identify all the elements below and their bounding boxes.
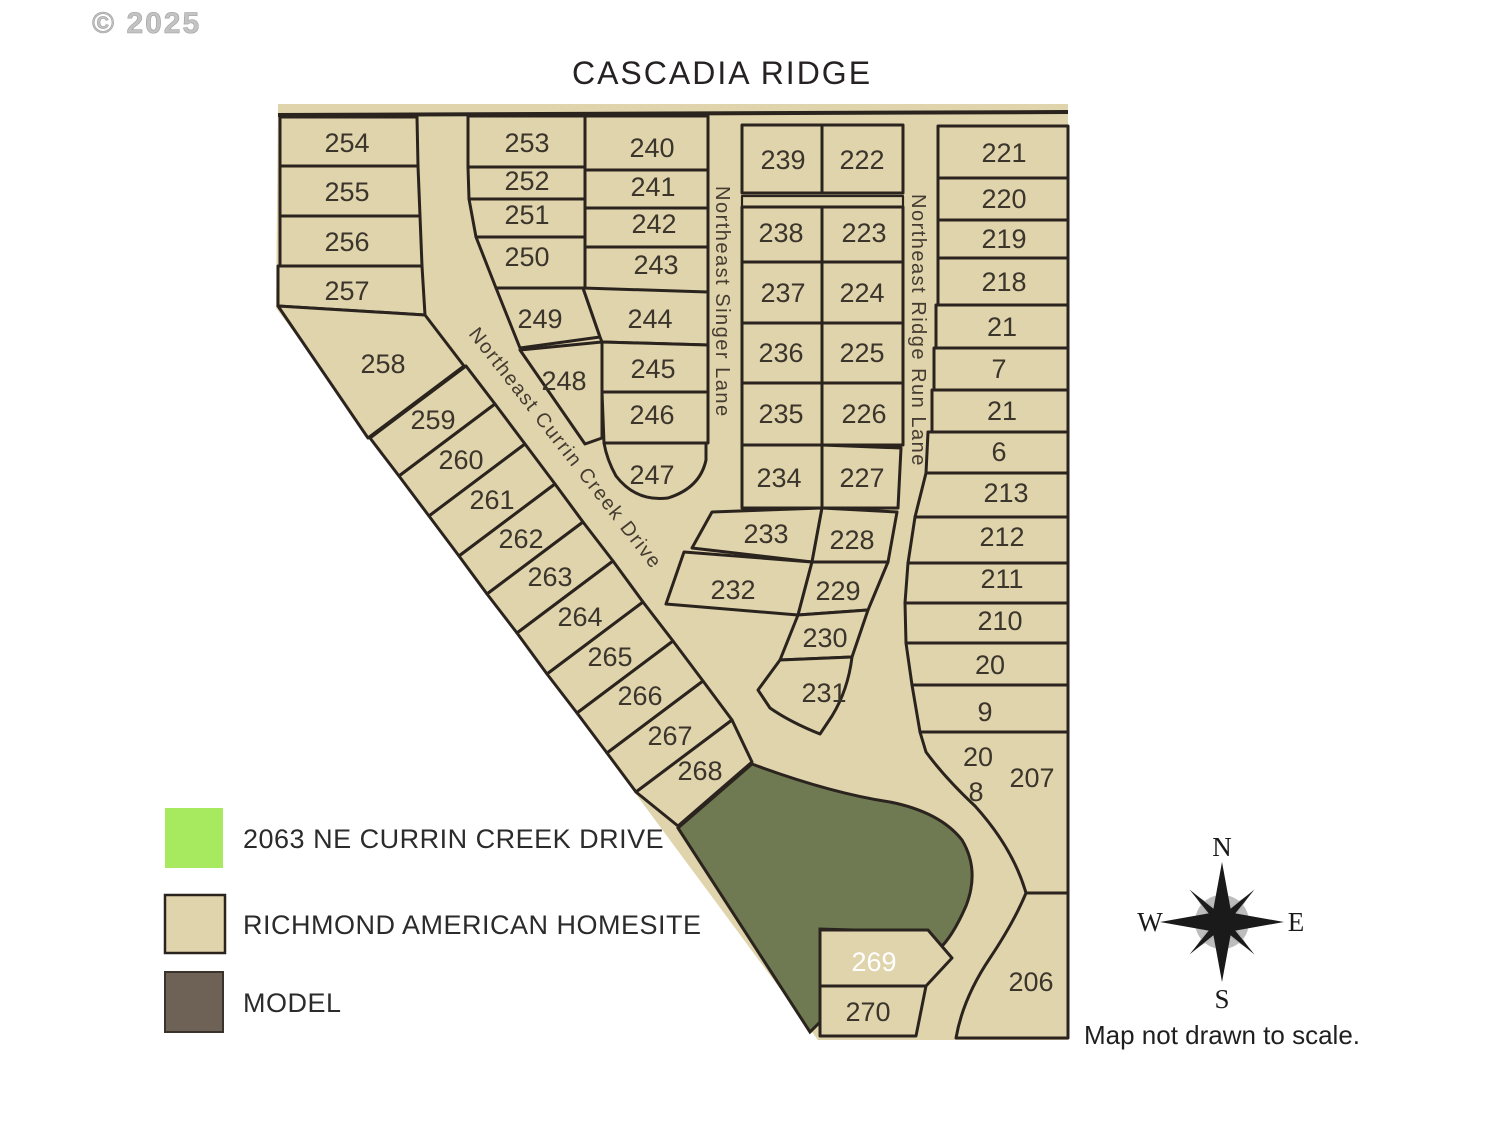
- compass-west-label: W: [1137, 907, 1163, 937]
- lot-label: 228: [829, 525, 874, 555]
- lot-label: 219: [981, 224, 1026, 254]
- copyright-watermark: © 2025: [92, 7, 201, 40]
- road-label-singer-lane: Northeast Singer Lane: [711, 186, 733, 418]
- legend-swatch-model: [165, 972, 223, 1032]
- lot-label: 250: [504, 242, 549, 272]
- lot-label: 226: [841, 399, 886, 429]
- legend: 2063 NE CURRIN CREEK DRIVE RICHMOND AMER…: [165, 808, 702, 1032]
- compass-north-label: N: [1212, 832, 1232, 862]
- lot-label: 243: [633, 250, 678, 280]
- lot-label: 244: [627, 304, 672, 334]
- page-title: CASCADIA RIDGE: [572, 55, 872, 91]
- lot-label: 207: [1009, 763, 1054, 793]
- legend-swatch-homesite: [165, 895, 225, 953]
- lot-label: 252: [504, 166, 549, 196]
- greenbelt-strip: [742, 196, 903, 207]
- lot-label: 262: [498, 524, 543, 554]
- lot-label: 9: [977, 697, 992, 727]
- lot-label: 254: [324, 128, 369, 158]
- lot-label: 242: [631, 209, 676, 239]
- legend-label: MODEL: [243, 988, 342, 1018]
- lot-label: 268: [677, 756, 722, 786]
- lot-label: 218: [981, 267, 1026, 297]
- lot-label: 6: [991, 437, 1006, 467]
- lot-label: 231: [801, 678, 846, 708]
- lot-label: 21: [987, 312, 1017, 342]
- lot-label: 266: [617, 681, 662, 711]
- lot-label: 221: [981, 138, 1026, 168]
- legend-swatch-highlight: [165, 808, 223, 868]
- lot-label: 264: [557, 602, 602, 632]
- lot-label: 7: [991, 354, 1006, 384]
- lot-label: 245: [630, 354, 675, 384]
- lot-label: 225: [839, 338, 884, 368]
- lot-label: 260: [438, 445, 483, 475]
- lot-label: 223: [841, 218, 886, 248]
- lot-label: 236: [758, 338, 803, 368]
- legend-label: RICHMOND AMERICAN HOMESITE: [243, 910, 702, 940]
- plat-map-page: © 2025 CASCADIA RIDGE: [0, 0, 1505, 1129]
- lot-label: 211: [980, 564, 1023, 594]
- lot-label: 261: [469, 485, 514, 515]
- lot-label: 206: [1008, 967, 1053, 997]
- lot-label: 265: [587, 642, 632, 672]
- lot-label: 267: [647, 721, 692, 751]
- lot-label: 269: [851, 947, 896, 977]
- lot-label: 253: [504, 128, 549, 158]
- lot-label: 230: [802, 623, 847, 653]
- lot-label: 255: [324, 177, 369, 207]
- lot-label: 239: [760, 145, 805, 175]
- lot-label: 240: [629, 133, 674, 163]
- lot-label: 233: [743, 519, 788, 549]
- lot-label: 224: [839, 278, 884, 308]
- lot-label: 237: [760, 278, 805, 308]
- compass-south-label: S: [1214, 984, 1229, 1014]
- lot-label: 246: [629, 400, 674, 430]
- lot-label: 20: [963, 742, 993, 772]
- compass-east-label: E: [1288, 907, 1305, 937]
- lot-label: 238: [758, 218, 803, 248]
- lot-label: 263: [527, 562, 572, 592]
- lot-label: 8: [968, 777, 983, 807]
- legend-label: 2063 NE CURRIN CREEK DRIVE: [243, 824, 664, 854]
- lot-label: 213: [983, 478, 1028, 508]
- scale-note: Map not drawn to scale.: [1084, 1020, 1360, 1050]
- lot-label: 222: [839, 145, 884, 175]
- lot-label: 259: [410, 405, 455, 435]
- lot-label: 220: [981, 184, 1026, 214]
- lot-label: 241: [630, 172, 675, 202]
- lot-label: 232: [710, 575, 755, 605]
- road-label-ridge-run-lane: Northeast Ridge Run Lane: [907, 194, 929, 467]
- lot-label: 249: [517, 304, 562, 334]
- compass-rose: N E S W: [1137, 832, 1304, 1014]
- lot-label: 21: [987, 396, 1017, 426]
- lot-label: 210: [977, 606, 1022, 636]
- lot-label: 234: [756, 463, 801, 493]
- lot-label: 212: [979, 522, 1024, 552]
- lot-label: 257: [324, 276, 369, 306]
- lot-label: 251: [504, 200, 549, 230]
- lot-label: 235: [758, 399, 803, 429]
- lot-label: 227: [839, 463, 884, 493]
- lot-label: 247: [629, 460, 674, 490]
- lot-label: 20: [975, 650, 1005, 680]
- lot-label: 256: [324, 227, 369, 257]
- lot-label: 229: [815, 576, 860, 606]
- lot-label: 258: [360, 349, 405, 379]
- cascadia-ridge-plat-map: © 2025 CASCADIA RIDGE: [0, 0, 1505, 1129]
- lot-label: 248: [541, 366, 586, 396]
- compass-hub: [1209, 909, 1235, 935]
- lot-label: 270: [845, 997, 890, 1027]
